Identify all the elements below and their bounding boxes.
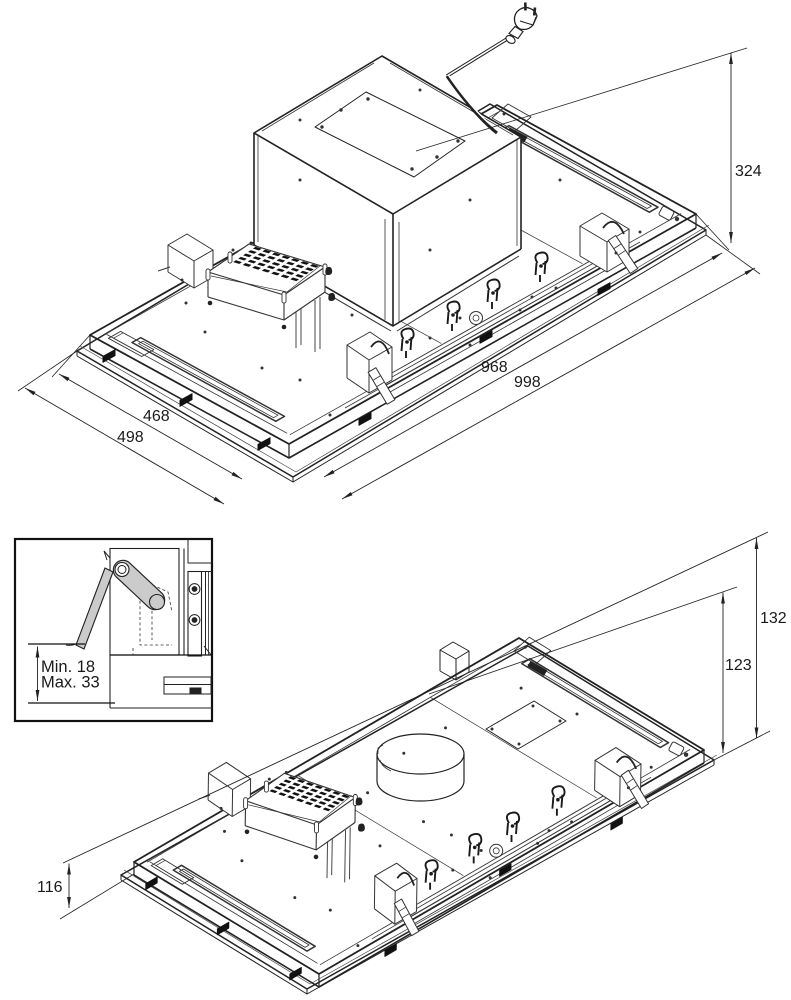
svg-text:116: 116 xyxy=(37,879,63,896)
svg-text:324: 324 xyxy=(735,163,762,180)
svg-text:498: 498 xyxy=(117,429,144,446)
svg-text:998: 998 xyxy=(514,374,541,391)
svg-text:132: 132 xyxy=(760,610,787,627)
svg-text:123: 123 xyxy=(725,657,752,674)
svg-text:968: 968 xyxy=(481,359,508,376)
svg-text:Max. 33: Max. 33 xyxy=(41,674,100,692)
svg-text:468: 468 xyxy=(143,408,170,425)
